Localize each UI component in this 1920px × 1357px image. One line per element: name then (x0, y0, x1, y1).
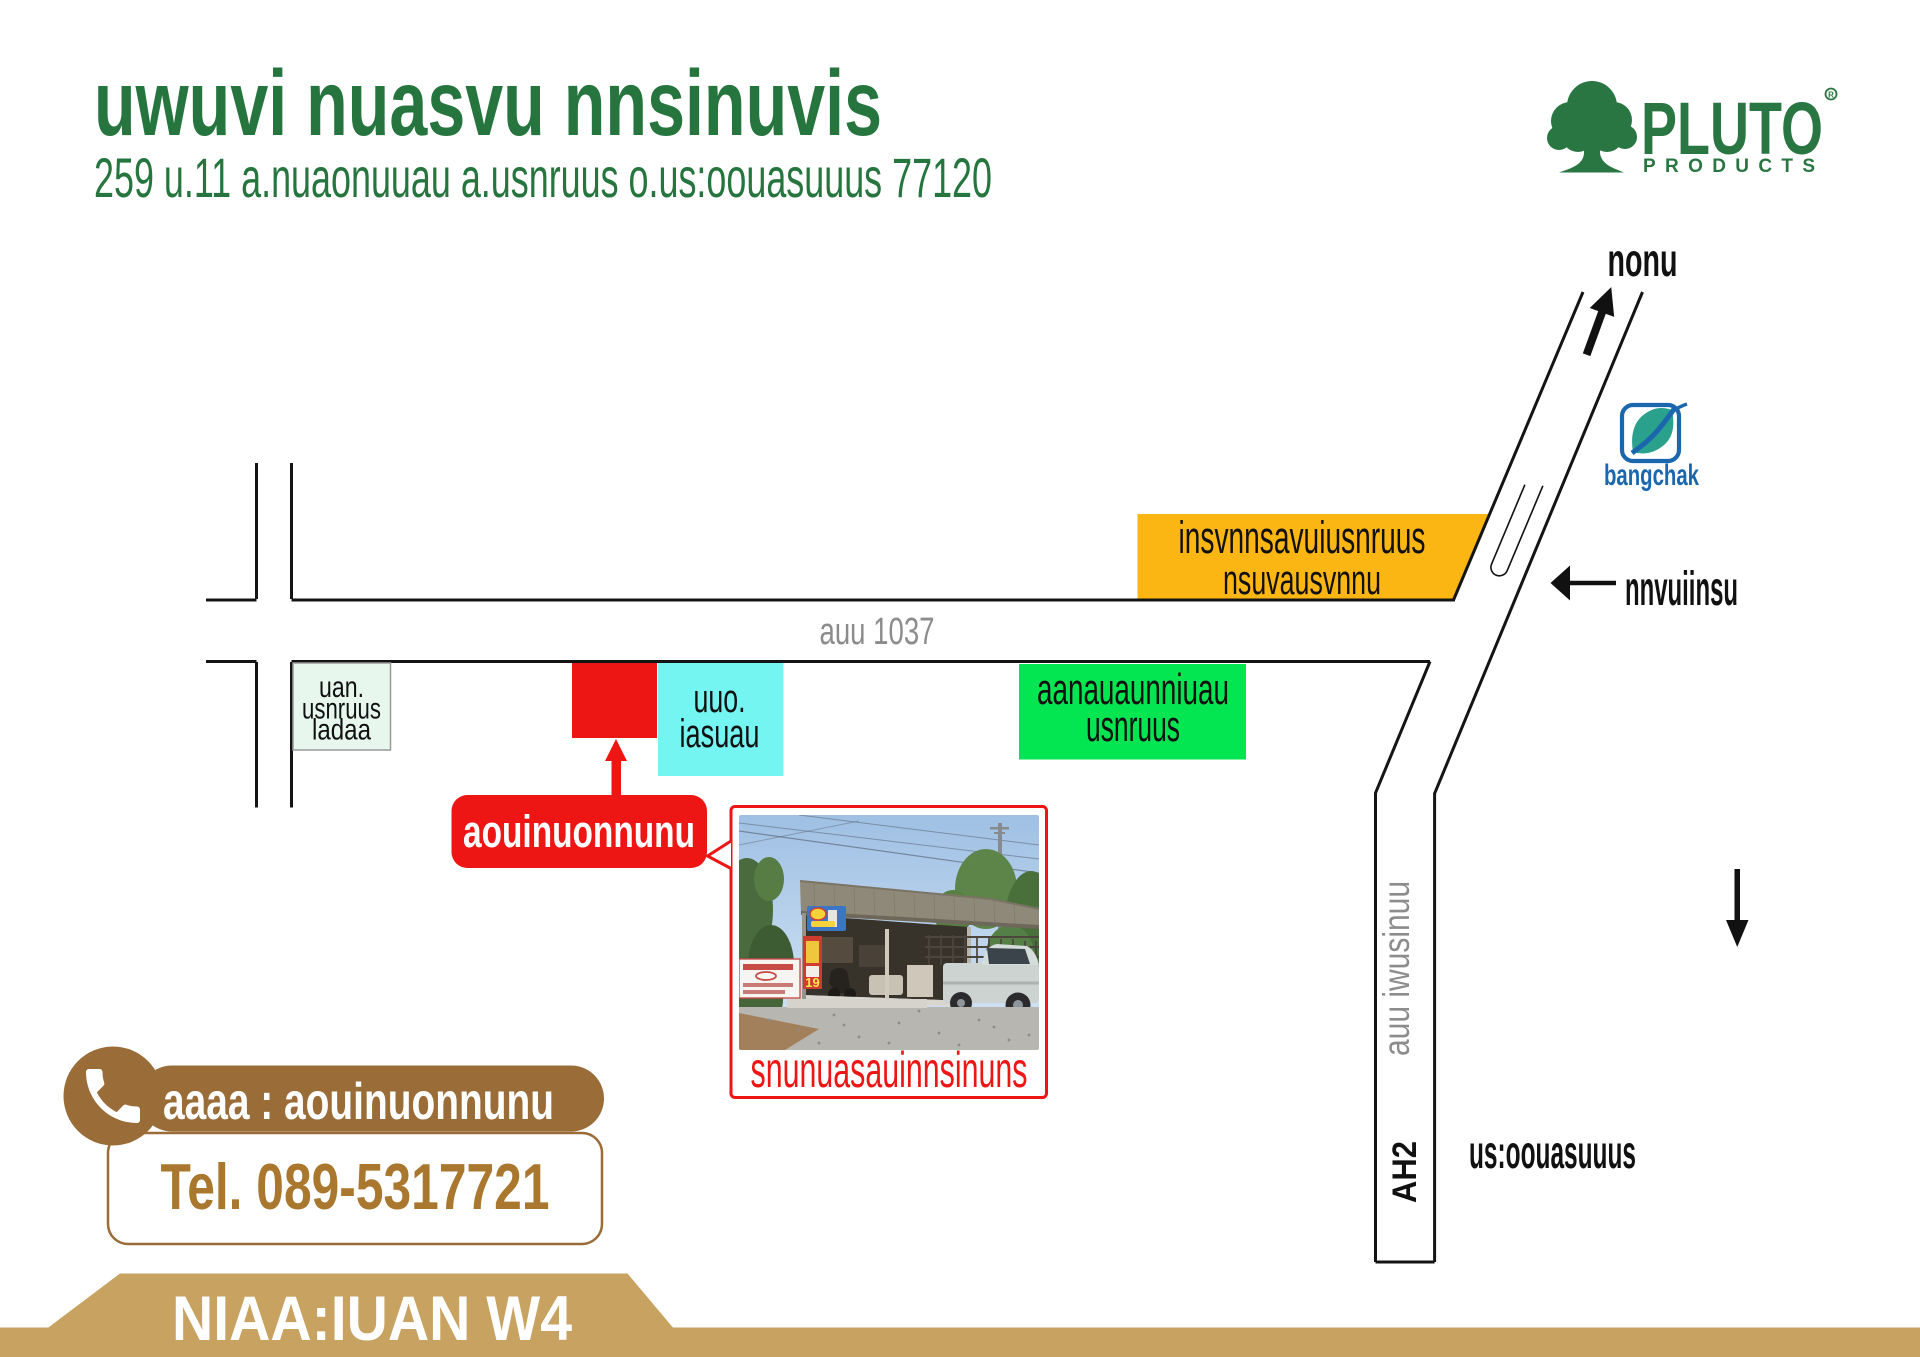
svg-text:us:oouasuuus: us:oouasuuus (1469, 1126, 1636, 1178)
svg-text:R: R (1828, 91, 1834, 100)
svg-text:19: 19 (805, 975, 819, 990)
svg-text:auu iwusinuu: auu iwusinuu (1376, 881, 1417, 1056)
svg-text:aaaa : aouinuonnunu: aaaa : aouinuonnunu (163, 1073, 554, 1131)
svg-text:nsuvausvnnu: nsuvausvnnu (1223, 556, 1381, 603)
svg-text:AH2: AH2 (1386, 1141, 1424, 1203)
svg-text:259 u.11 a.nuaonuuau a.usnruus: 259 u.11 a.nuaonuuau a.usnruus o.us:ooua… (94, 146, 992, 209)
svg-text:uwuvi nuasvu nnsinuvis: uwuvi nuasvu nnsinuvis (94, 51, 882, 155)
svg-text:aouinuonnunu: aouinuonnunu (463, 806, 695, 857)
svg-text:Tel. 089-5317721: Tel. 089-5317721 (161, 1150, 550, 1223)
svg-text:nnvuiinsu: nnvuiinsu (1625, 563, 1738, 616)
svg-text:nonu: nonu (1608, 234, 1678, 286)
svg-text:bangchak: bangchak (1604, 459, 1699, 492)
svg-text:snunuasauinnsinuns: snunuasauinnsinuns (751, 1042, 1028, 1098)
svg-text:auu 1037: auu 1037 (820, 611, 935, 653)
svg-text:usnruus: usnruus (1086, 702, 1180, 751)
svg-text:NIAA:IUAN W4: NIAA:IUAN W4 (172, 1284, 572, 1354)
svg-text:ladaa: ladaa (312, 714, 371, 747)
svg-text:iasuau: iasuau (680, 712, 760, 756)
